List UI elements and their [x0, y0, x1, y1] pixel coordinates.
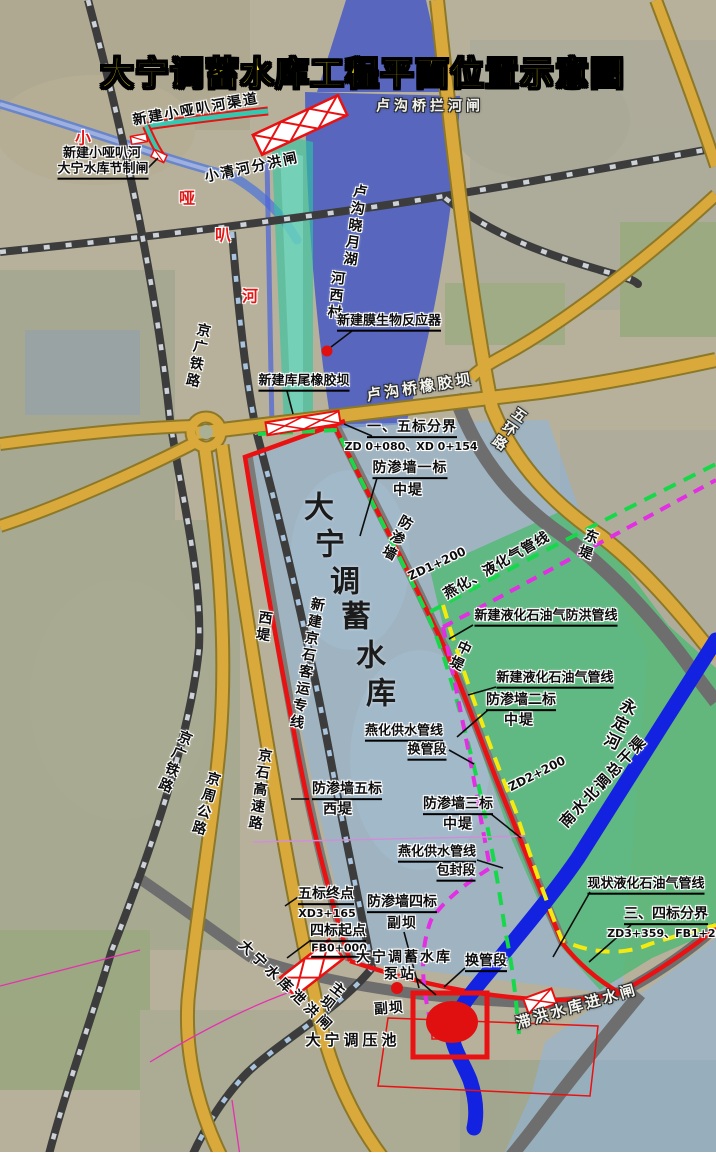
map-canvas	[0, 0, 716, 1170]
map-title: 大宁调蓄水库工程平面位置示意图	[101, 47, 626, 95]
pump-station-dot-large	[426, 1001, 478, 1043]
jinshuizha-gate-icon	[523, 988, 557, 1013]
lugou-xiaoyue-lake	[305, 92, 460, 429]
bottom-margin	[0, 1152, 716, 1170]
map-stage: 新建小哑叭河渠道卢沟桥拦河闸小清河分洪闸新建小哑叭河大宁水库节制闸小哑叭河河西村…	[0, 0, 716, 1170]
reactor-dot	[322, 346, 333, 357]
channel-head-gate-icon	[130, 134, 147, 145]
pump-station-dot	[391, 982, 403, 994]
